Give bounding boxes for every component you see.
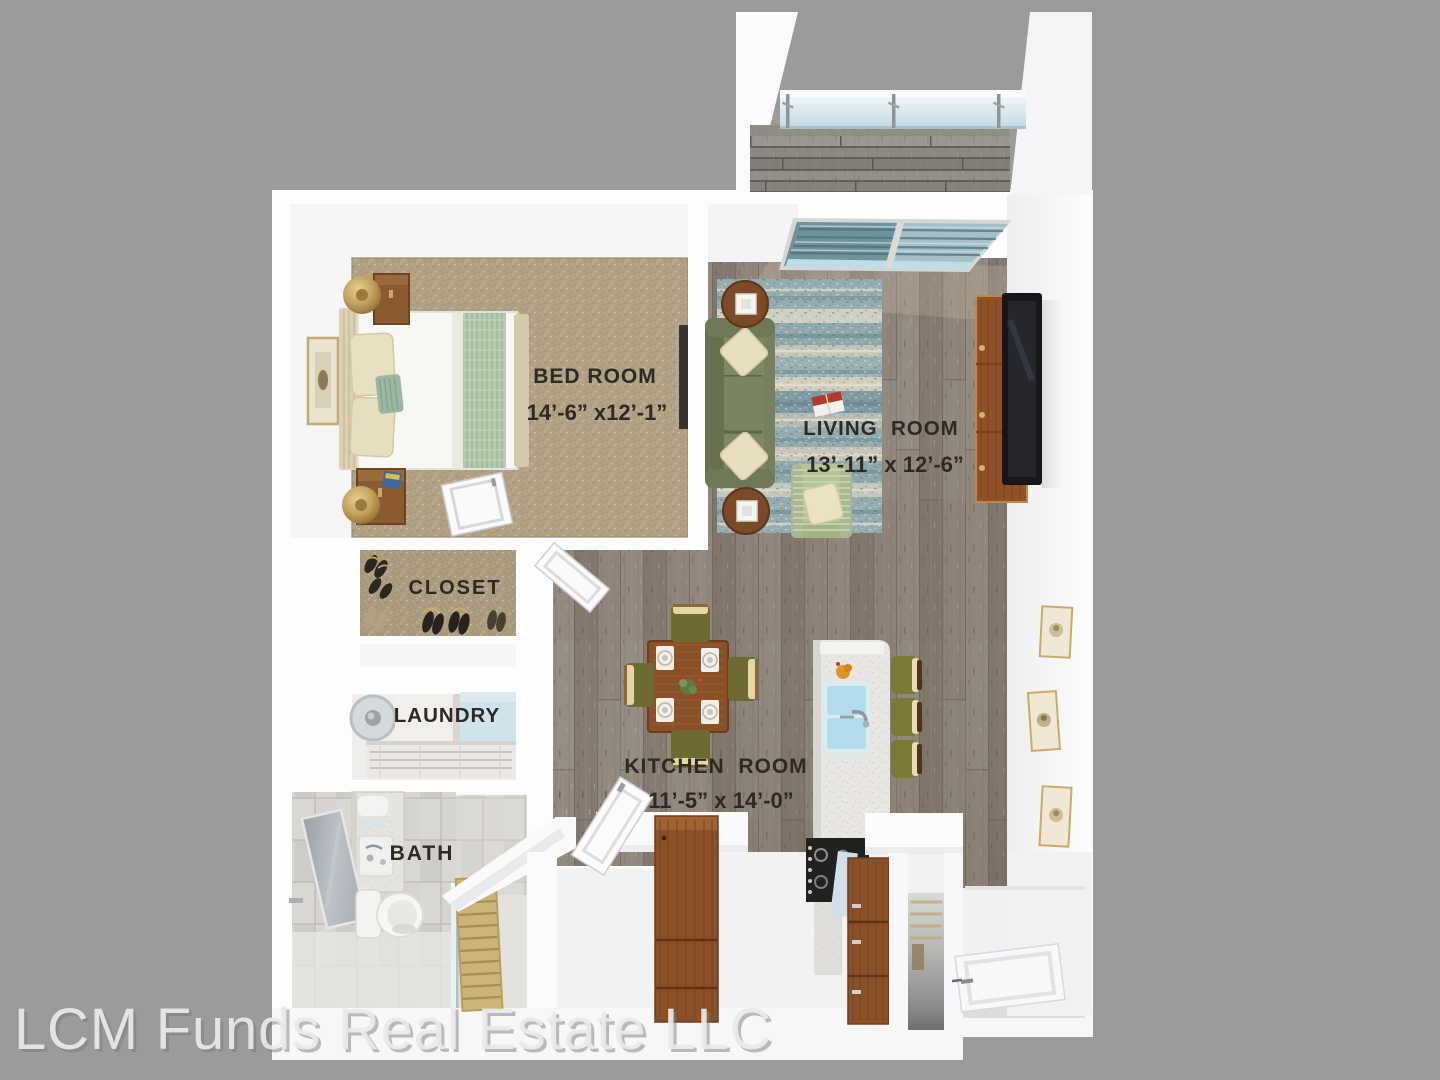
svg-text:13’-11” x 12’-6”: 13’-11” x 12’-6” <box>806 452 964 477</box>
svg-text:KITCHEN ROOM: KITCHEN ROOM <box>624 755 807 778</box>
svg-text:LCM Funds Real Estate LLC: LCM Funds Real Estate LLC <box>14 997 772 1062</box>
svg-text:11’-5” x 14’-0”: 11’-5” x 14’-0” <box>648 788 794 813</box>
svg-text:LIVING ROOM: LIVING ROOM <box>803 417 959 440</box>
svg-text:14’-6” x12’-1”: 14’-6” x12’-1” <box>527 400 668 425</box>
svg-text:LAUNDRY: LAUNDRY <box>394 704 500 727</box>
svg-text:CLOSET: CLOSET <box>408 577 501 599</box>
svg-text:BATH: BATH <box>390 842 455 865</box>
svg-text:BED ROOM: BED ROOM <box>533 365 657 388</box>
